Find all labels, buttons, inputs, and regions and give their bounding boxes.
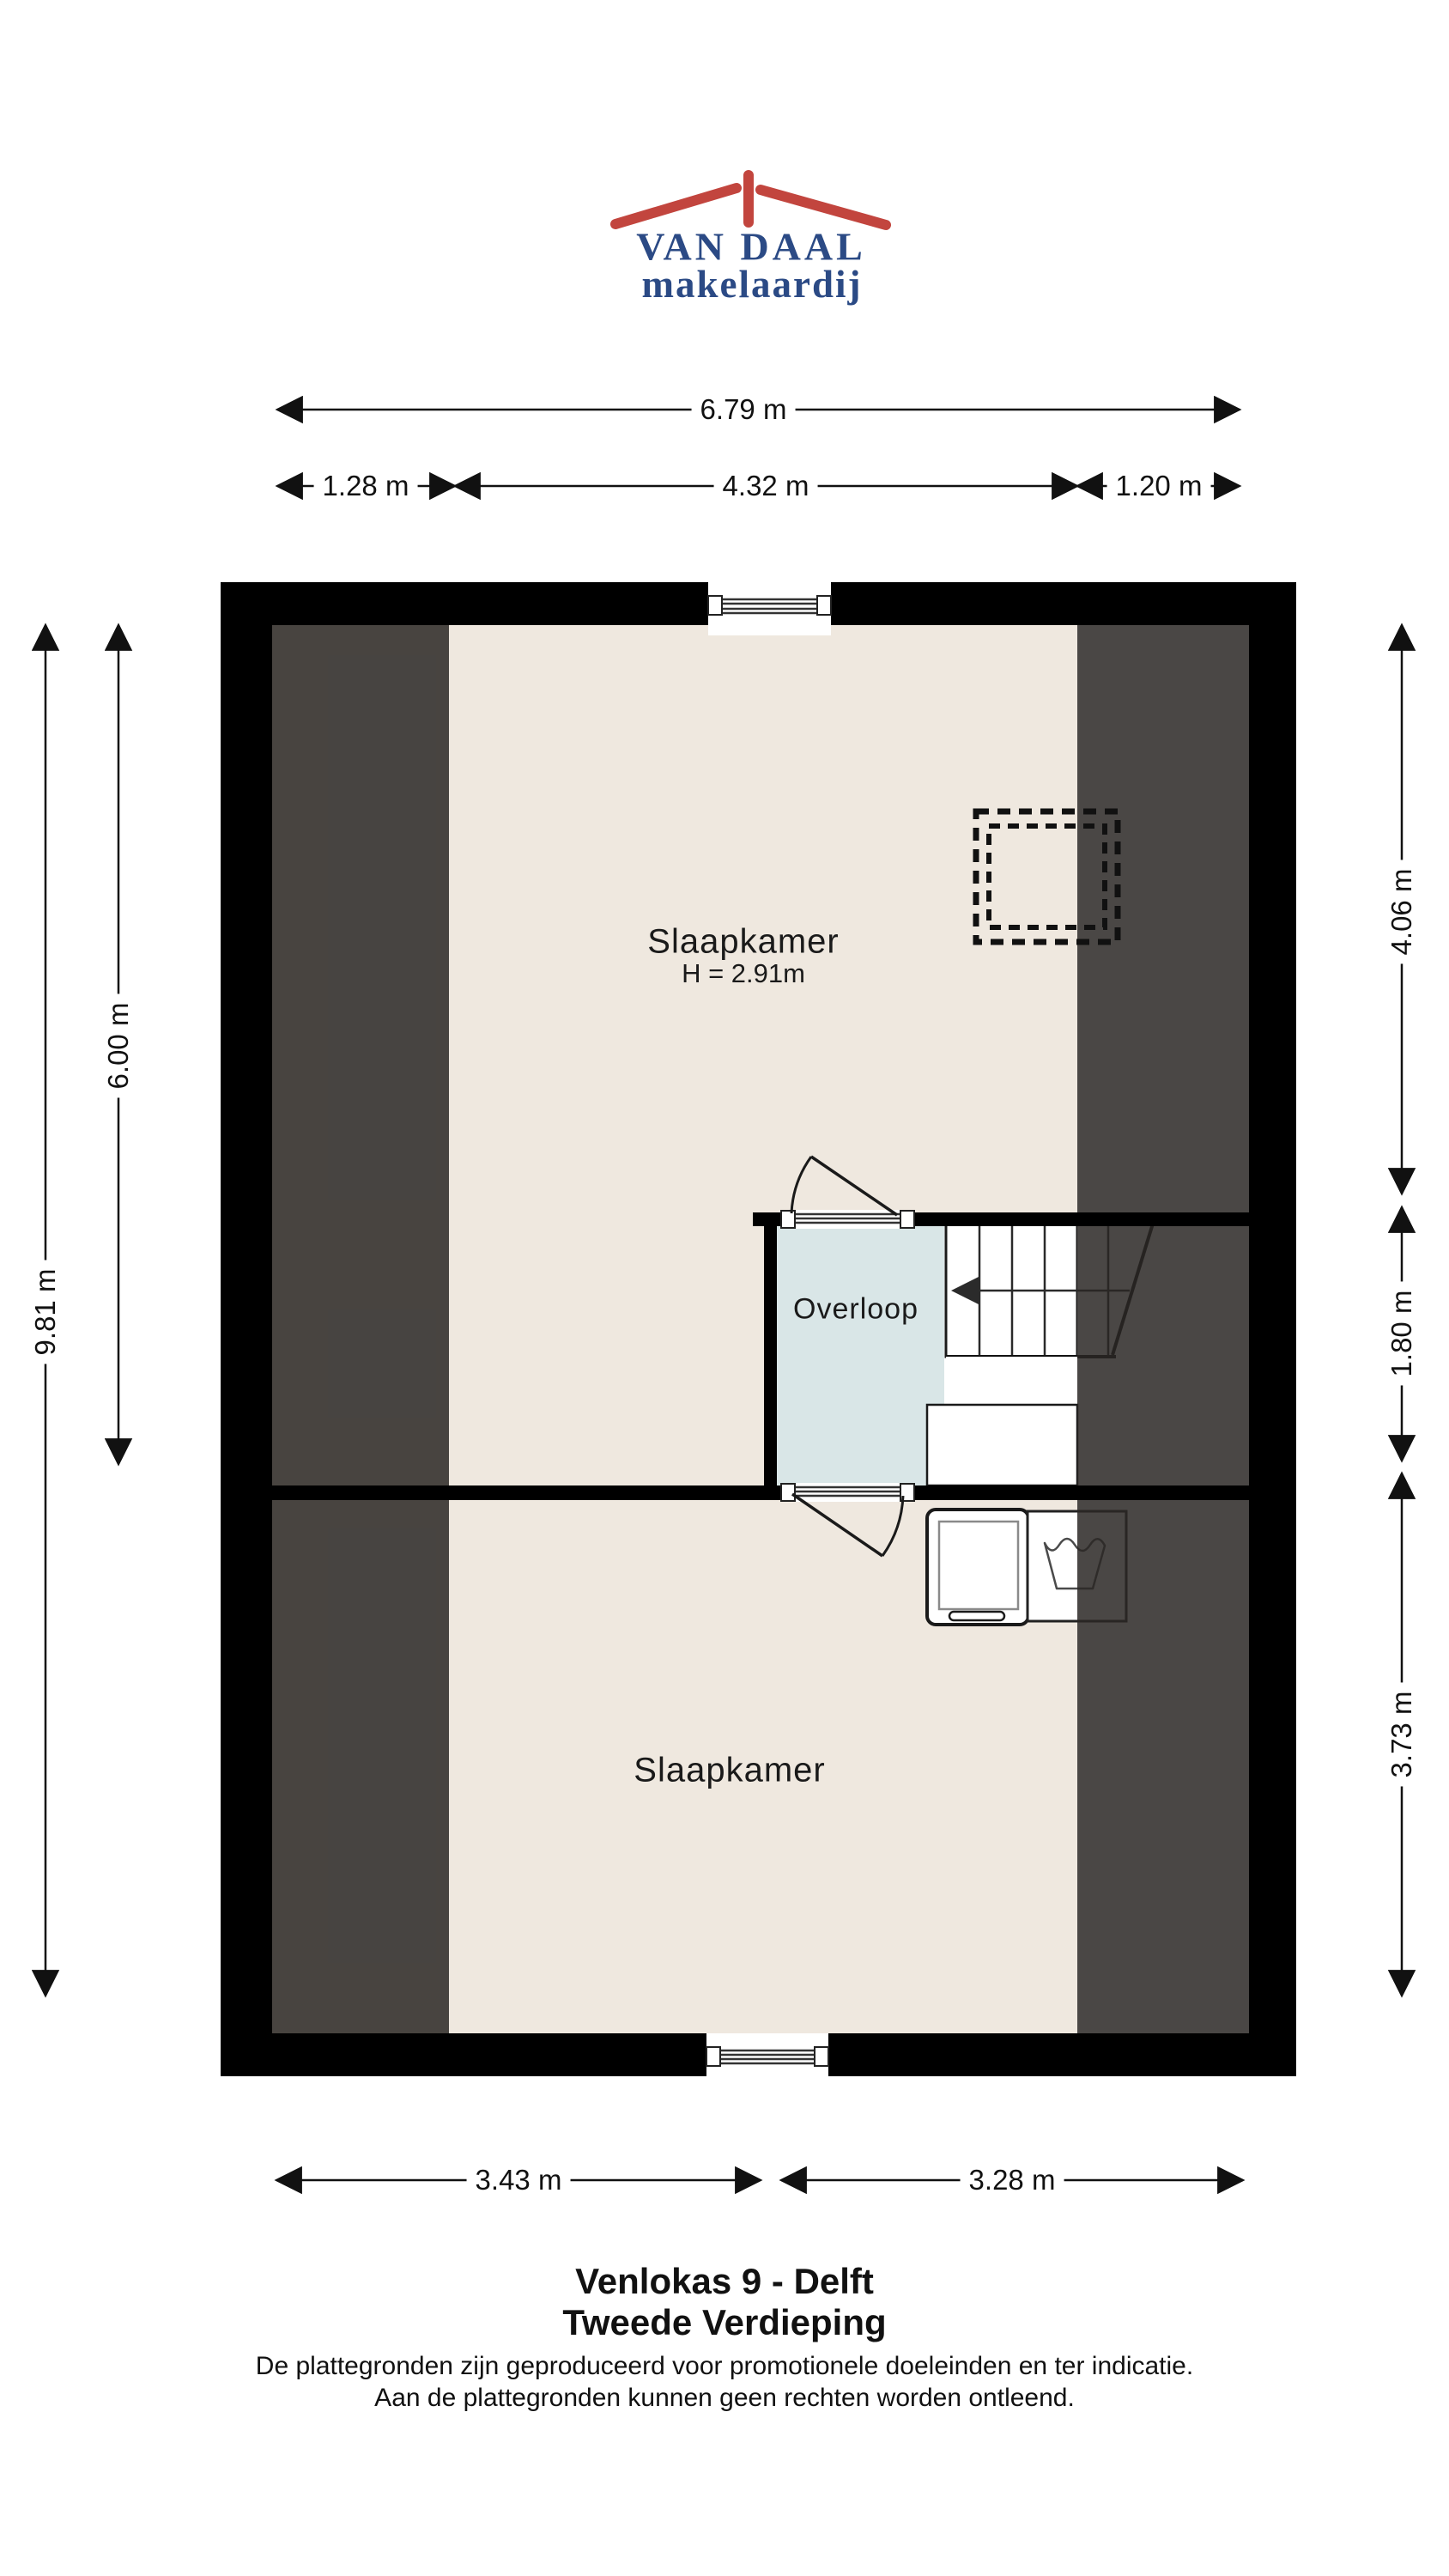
room-ceiling-height: H = 2.91m	[682, 958, 805, 989]
disclaimer-line-1: De plattegronden zijn geproduceerd voor …	[256, 2352, 1193, 2381]
dim-top-middle: 4.32 m	[714, 471, 818, 501]
dim-left-upper: 6.00 m	[103, 994, 134, 1098]
address-title: Venlokas 9 - Delft	[575, 2261, 874, 2302]
window-top	[708, 582, 831, 635]
room-label-landing: Overloop	[793, 1293, 919, 1327]
dim-right-upper: 4.06 m	[1386, 860, 1417, 964]
disclaimer-line-2: Aan de plattegronden kunnen geen rechten…	[374, 2384, 1075, 2413]
landing-floor	[777, 1226, 944, 1485]
washing-machine-icon	[927, 1510, 1028, 1625]
roof-logo-icon	[615, 175, 886, 225]
dim-bottom-left: 3.43 m	[467, 2165, 571, 2196]
dim-top-left: 1.28 m	[314, 471, 418, 501]
dim-right-lower: 3.73 m	[1386, 1683, 1417, 1787]
brand-tagline: makelaardij	[642, 262, 863, 307]
dim-top-right: 1.20 m	[1107, 471, 1211, 501]
dim-left-total: 9.81 m	[30, 1261, 61, 1364]
floor-subtitle: Tweede Verdieping	[562, 2302, 886, 2343]
room-label-bedroom-top: Slaapkamer	[647, 923, 839, 962]
stair-void	[927, 1357, 1077, 1485]
dim-right-middle: 1.80 m	[1386, 1282, 1417, 1386]
dim-top-total: 6.79 m	[692, 394, 796, 425]
floorplan-drawing	[0, 0, 1449, 2576]
window-bottom	[706, 2033, 828, 2082]
dim-bottom-right: 3.28 m	[961, 2165, 1064, 2196]
floorplan-page: VAN DAAL makelaardij 6.79 m 1.28 m 4.32 …	[0, 0, 1449, 2576]
room-label-bedroom-bottom: Slaapkamer	[634, 1752, 825, 1790]
